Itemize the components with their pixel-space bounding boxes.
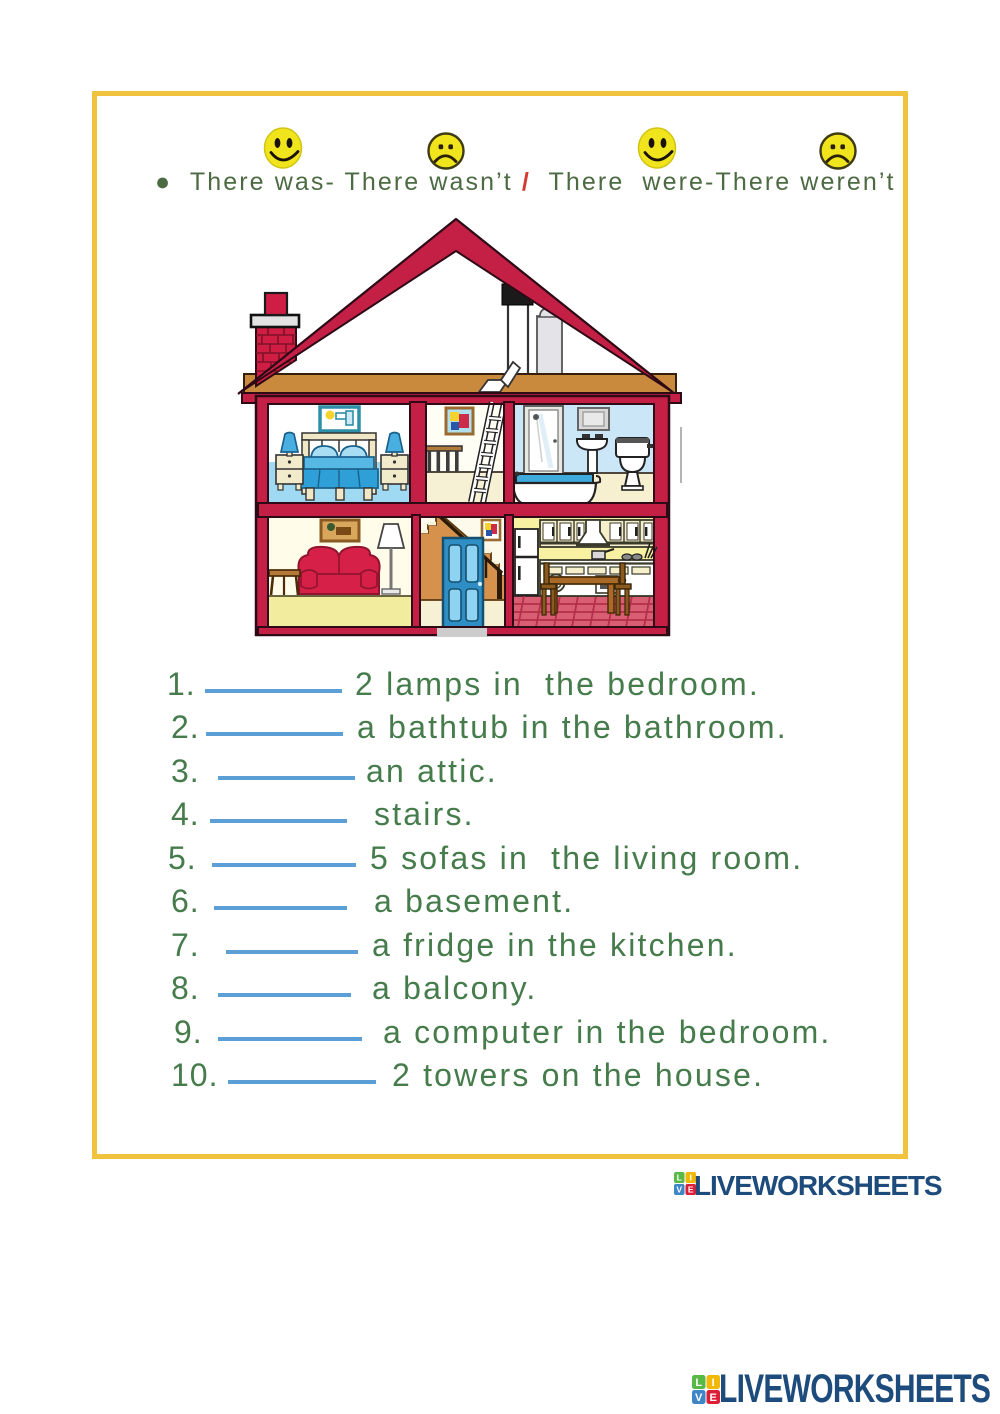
svg-text:L: L bbox=[677, 1173, 682, 1183]
svg-text:E: E bbox=[710, 1392, 717, 1404]
svg-text:I: I bbox=[712, 1377, 715, 1389]
svg-text:V: V bbox=[695, 1392, 703, 1404]
svg-text:L: L bbox=[695, 1377, 702, 1389]
svg-text:V: V bbox=[676, 1185, 682, 1195]
svg-text:I: I bbox=[690, 1173, 692, 1183]
svg-text:E: E bbox=[688, 1185, 694, 1195]
